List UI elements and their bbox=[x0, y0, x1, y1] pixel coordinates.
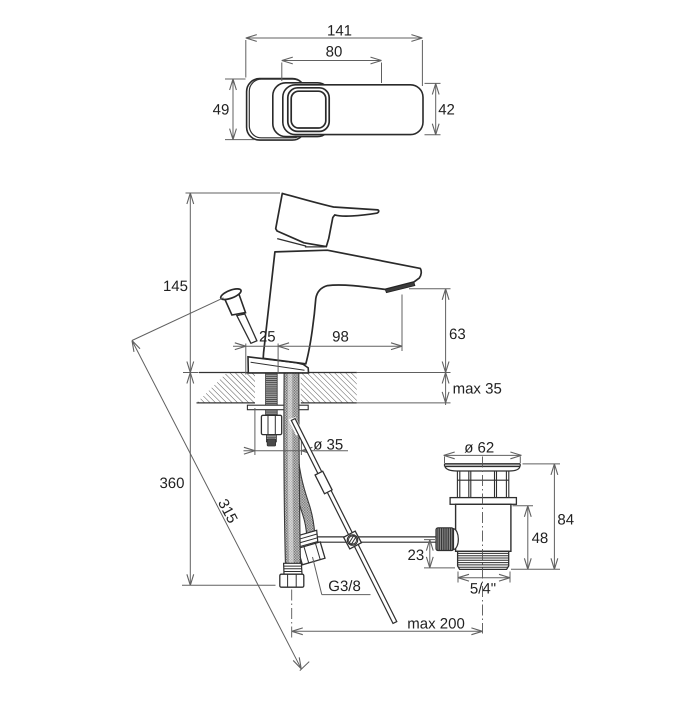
svg-text:80: 80 bbox=[326, 43, 343, 60]
svg-text:42: 42 bbox=[438, 101, 455, 118]
svg-text:max 35: max 35 bbox=[453, 380, 502, 397]
svg-text:141: 141 bbox=[327, 23, 352, 40]
svg-text:145: 145 bbox=[163, 278, 188, 295]
svg-text:G3/8: G3/8 bbox=[328, 578, 361, 595]
svg-text:48: 48 bbox=[532, 530, 549, 547]
svg-text:25: 25 bbox=[259, 328, 276, 345]
svg-text:360: 360 bbox=[159, 475, 184, 492]
svg-text:5/4": 5/4" bbox=[470, 581, 496, 598]
svg-text:98: 98 bbox=[332, 328, 349, 345]
svg-text:max 200: max 200 bbox=[407, 616, 465, 633]
svg-text:84: 84 bbox=[557, 512, 574, 529]
svg-text:ø 35: ø 35 bbox=[313, 437, 343, 454]
svg-text:49: 49 bbox=[213, 101, 230, 118]
svg-text:ø 62: ø 62 bbox=[464, 439, 494, 456]
svg-text:23: 23 bbox=[408, 547, 425, 564]
svg-text:63: 63 bbox=[449, 326, 466, 343]
